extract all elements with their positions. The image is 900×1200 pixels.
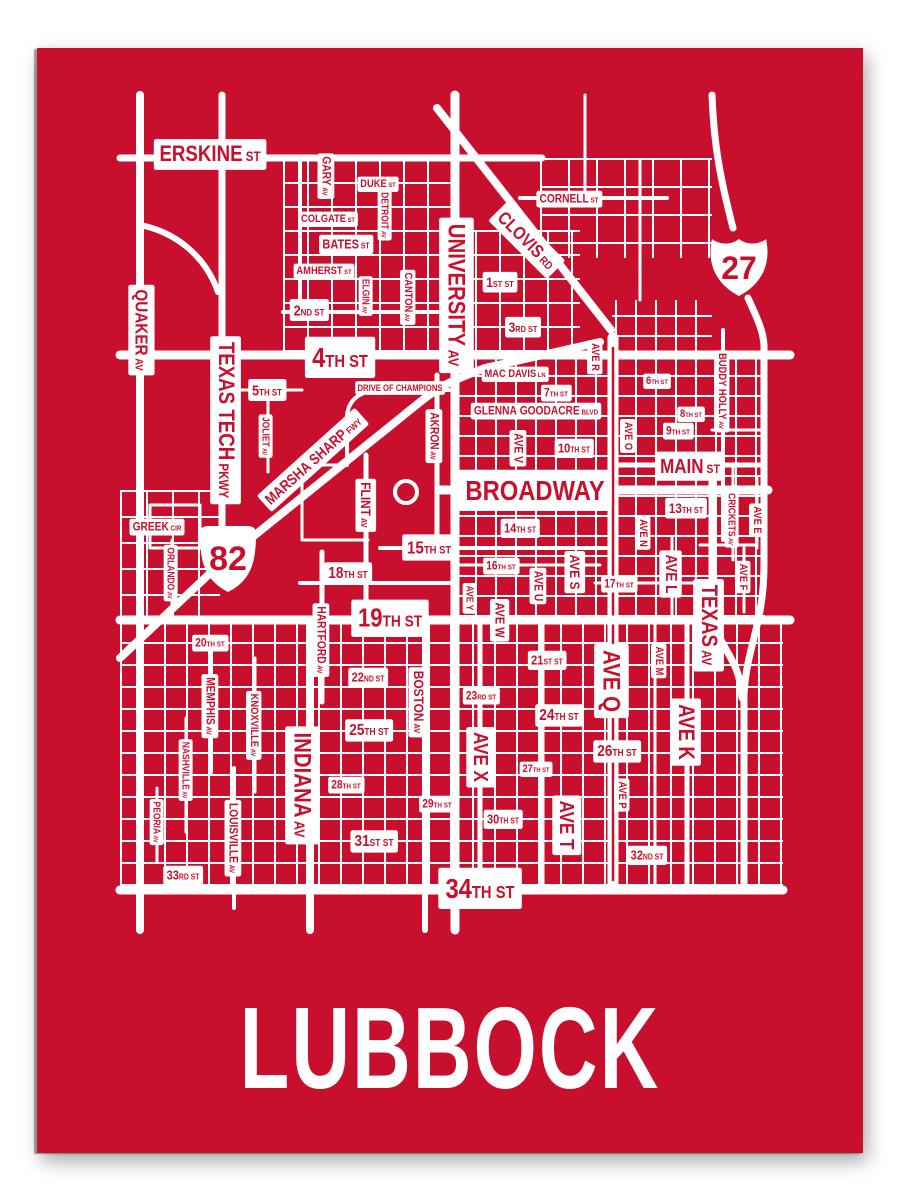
- street-label: 28TH ST: [328, 777, 364, 794]
- street-label: QUAKER AV: [128, 285, 154, 376]
- svg-text:AVE M: AVE M: [653, 647, 665, 676]
- street-label: 17TH ST: [601, 576, 637, 593]
- street-label: COLGATE ST: [298, 212, 358, 227]
- street-label: ORLANDO AV: [164, 545, 178, 602]
- street-label: 34TH ST: [438, 868, 522, 909]
- street-label: AKRON AV: [426, 409, 443, 463]
- interstate-27-shield: 27: [710, 239, 767, 296]
- street-label: AVE S: [564, 551, 585, 593]
- street-label: AVE X: [466, 727, 495, 788]
- city-grid-zone: [540, 158, 712, 258]
- street-label: 10TH ST: [555, 439, 594, 458]
- interstate-shield-number: 27: [721, 250, 757, 286]
- road: [140, 225, 218, 292]
- street-label: INDIANA AV: [285, 726, 320, 844]
- city-grid-zone: [612, 300, 712, 355]
- street-label: AVE K: [670, 699, 701, 766]
- street-label: CRICKETS AV: [725, 491, 739, 548]
- street-label: AVE F: [735, 561, 750, 593]
- svg-text:AVE K: AVE K: [674, 704, 698, 760]
- street-label: BUDDY HOLLY AV: [714, 350, 729, 432]
- street-label: 8TH ST: [677, 407, 705, 422]
- street-label: DETROIT AV: [378, 190, 392, 241]
- street-label: AVE V: [510, 430, 527, 466]
- street-label: AVE M: [651, 644, 666, 678]
- us-route-shield-number: 82: [209, 540, 247, 578]
- street-label: 2ND ST: [290, 299, 329, 321]
- street-label: 3RD ST: [505, 317, 541, 338]
- street-label: HARTFORD AV: [313, 603, 330, 677]
- road-i27: [712, 95, 733, 228]
- street-label: 30TH ST: [484, 810, 523, 829]
- svg-text:AVE V: AVE V: [511, 433, 524, 463]
- street-label: 7TH ST: [541, 385, 572, 402]
- svg-text:AVE T: AVE T: [555, 801, 578, 850]
- svg-text:AVE N: AVE N: [637, 519, 649, 547]
- street-label: 6TH ST: [643, 374, 671, 389]
- street-label: ELGIN AV: [359, 276, 373, 316]
- svg-text:BROADWAY: BROADWAY: [465, 474, 604, 506]
- street-label: 15TH ST: [402, 534, 456, 560]
- street-label: AVE P: [614, 779, 629, 812]
- svg-text:DRIVE OF CHAMPIONS: DRIVE OF CHAMPIONS: [358, 383, 443, 394]
- street-label: AVE Y: [463, 583, 477, 614]
- street-label: 27TH ST: [520, 762, 553, 777]
- street-label: KNOXVILLE AV: [246, 691, 261, 760]
- street-label: 31ST ST: [350, 830, 397, 852]
- svg-text:BUDDY HOLLY AV: BUDDY HOLLY AV: [716, 353, 728, 429]
- street-label: UNIVERSITY AV: [439, 218, 474, 373]
- svg-text:AVE R: AVE R: [589, 343, 601, 371]
- street-label: BOSTON AV: [408, 667, 429, 737]
- svg-text:AVE O: AVE O: [622, 422, 634, 450]
- street-label: AVE U: [530, 568, 547, 605]
- street-label: AVE Q: [594, 644, 629, 718]
- svg-text:AVE E: AVE E: [751, 506, 763, 534]
- street-label: 5TH ST: [248, 379, 286, 401]
- street-label: 23RD ST: [463, 688, 500, 705]
- svg-text:AVE Y: AVE Y: [464, 586, 475, 612]
- street-label: 1ST ST: [483, 272, 518, 293]
- street-label: JOLIET AV: [259, 414, 273, 457]
- page: LUBBOCK: [0, 0, 900, 1200]
- street-label: AMHERST ST: [294, 264, 355, 279]
- svg-text:UNIVERSITY AV: UNIVERSITY AV: [443, 224, 470, 367]
- svg-text:AVE F: AVE F: [737, 564, 749, 591]
- street-label: TEXAS AV: [693, 579, 724, 672]
- street-label: DRIVE OF CHAMPIONS: [355, 381, 445, 395]
- street-label: AVE T: [552, 796, 581, 856]
- street-label: FLINT AV: [355, 479, 376, 532]
- svg-text:AVE W: AVE W: [492, 602, 507, 638]
- street-label: NASHVILLE AV: [179, 739, 193, 801]
- street-label: AVE N: [635, 516, 650, 549]
- svg-text:AVE X: AVE X: [469, 732, 492, 782]
- svg-text:AVE P: AVE P: [616, 781, 628, 809]
- street-label: DUKE ST: [357, 177, 398, 192]
- street-label: AVE W: [490, 599, 509, 642]
- street-label: CORNELL ST: [536, 191, 602, 208]
- street-label: 19TH ST: [351, 600, 428, 637]
- street-label: GREEK CIR: [130, 519, 185, 536]
- street-label: BROADWAY: [458, 470, 611, 511]
- street-label: AVE L: [659, 550, 681, 597]
- street-label: 32ND ST: [627, 846, 667, 865]
- street-label: MAC DAVIS LN: [482, 367, 549, 382]
- street-label: 22ND ST: [348, 668, 388, 687]
- svg-text:AVE S: AVE S: [567, 555, 583, 590]
- street-label: 33RD ST: [163, 866, 203, 885]
- street-label: ERSKINE ST: [154, 139, 267, 170]
- street-label: AVE E: [749, 504, 764, 537]
- svg-text:AVE U: AVE U: [531, 571, 544, 601]
- street-label: CANTON AV: [400, 270, 415, 325]
- street-label: AVE R: [587, 340, 602, 374]
- street-label: MEMPHIS AV: [202, 674, 219, 738]
- street-label: 20TH ST: [192, 635, 228, 652]
- street-label: 16TH ST: [483, 558, 519, 575]
- svg-text:LOUISVILLE AV: LOUISVILLE AV: [226, 803, 239, 873]
- street-label: GARY AV: [318, 153, 335, 199]
- street-label: 9TH ST: [663, 423, 694, 440]
- street-label: 21ST ST: [528, 651, 567, 670]
- street-label: BATES ST: [319, 235, 373, 254]
- memorial-circle: [395, 481, 417, 503]
- street-label: 26TH ST: [593, 740, 641, 762]
- street-label: 24TH ST: [535, 704, 583, 726]
- street-label: AVE O: [620, 419, 635, 453]
- street-label: 18TH ST: [324, 562, 372, 584]
- svg-text:GLENNA GOODACRE BLVD: GLENNA GOODACRE BLVD: [474, 405, 598, 418]
- svg-text:AVE Q: AVE Q: [598, 650, 625, 712]
- street-label: 4TH ST: [305, 337, 375, 378]
- street-label: 14TH ST: [501, 519, 540, 538]
- street-label: 13TH ST: [665, 498, 707, 519]
- street-label: GLENNA GOODACRE BLVD: [471, 403, 601, 420]
- street-map: ERSKINE STQUAKER AVGARY AVDUKE STDETROIT…: [0, 0, 900, 1200]
- street-label: 29TH ST: [419, 796, 455, 813]
- street-label: LOUISVILLE AV: [225, 800, 242, 877]
- street-label: MAIN ST: [655, 452, 725, 481]
- street-label: TEXAS TECH PKWY: [210, 336, 241, 504]
- street-label: 25TH ST: [345, 719, 393, 741]
- street-label: PEORIA AV: [150, 799, 164, 845]
- svg-text:AVE L: AVE L: [662, 555, 679, 594]
